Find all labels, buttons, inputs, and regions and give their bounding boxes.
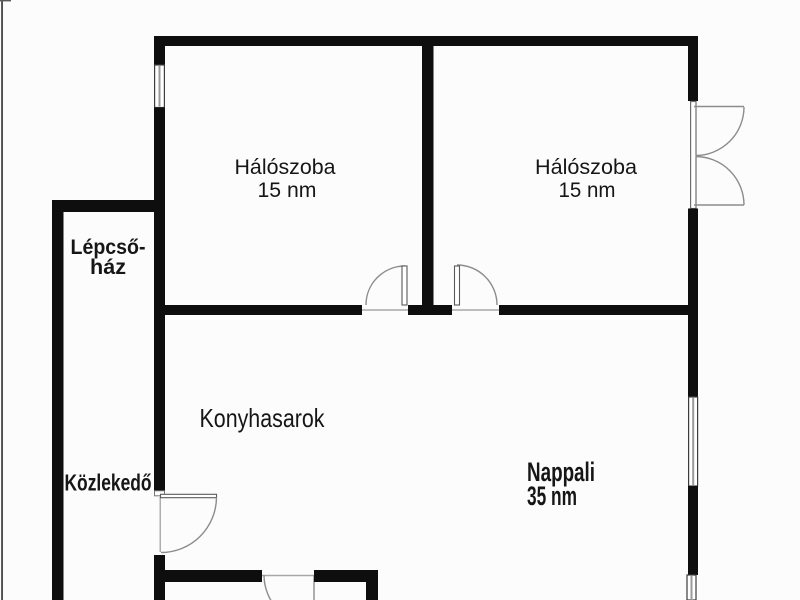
svg-text:ház: ház — [90, 256, 126, 279]
svg-text:15 nm: 15 nm — [258, 179, 317, 202]
svg-text:Közlekedő: Közlekedő — [65, 470, 152, 496]
svg-text:Konyhasarok: Konyhasarok — [200, 403, 326, 433]
svg-text:Hálószoba: Hálószoba — [235, 156, 336, 179]
svg-text:35 nm: 35 nm — [527, 481, 577, 511]
svg-text:15 nm: 15 nm — [559, 179, 616, 202]
svg-text:Hálószoba: Hálószoba — [535, 156, 637, 179]
